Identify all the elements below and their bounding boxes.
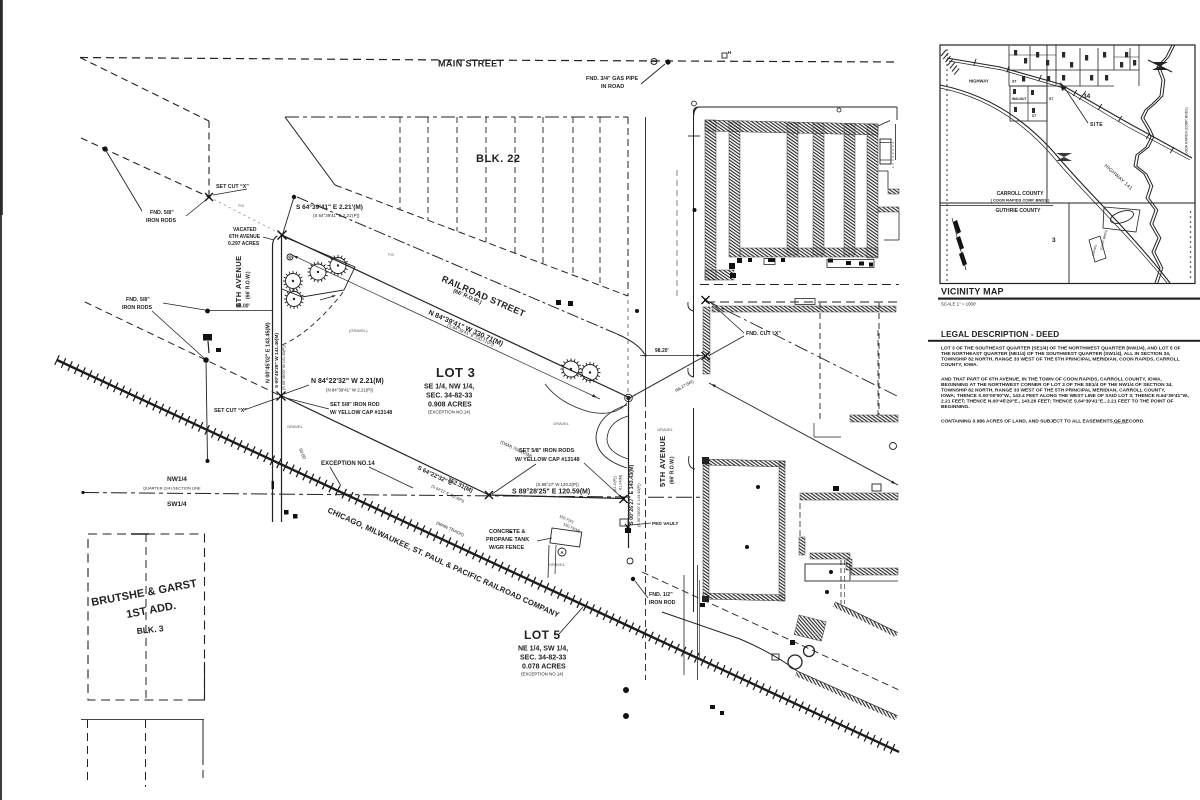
svg-text:PROPANE TANK: PROPANE TANK [486, 537, 529, 543]
svg-text:6TH AVENUE: 6TH AVENUE [229, 234, 261, 240]
svg-text:SET CUT “X”: SET CUT “X” [214, 408, 247, 414]
svg-text:QUARTER (1/4) SECTION LINE: QUARTER (1/4) SECTION LINE [143, 486, 201, 491]
svg-text:SEC. 34-82-33: SEC. 34-82-33 [426, 393, 472, 400]
svg-text:FND. CUT “X”: FND. CUT “X” [746, 331, 781, 337]
svg-text:(S 00°45'00" W 141.40(P)): (S 00°45'00" W 141.40(P)) [282, 345, 286, 390]
svg-text:(N 84°39'41" W 2.21(P)): (N 84°39'41" W 2.21(P)) [326, 388, 374, 393]
svg-text:IN ROAD: IN ROAD [601, 84, 624, 90]
svg-text:NE 1/4, SW 1/4,: NE 1/4, SW 1/4, [518, 646, 568, 653]
svg-text:AND THAT PART OF 6TH AVENUE, I: AND THAT PART OF 6TH AVENUE, IN THE TOWN… [941, 377, 1162, 383]
svg-text:(S 00°26'00" E 143.40(P)): (S 00°26'00" E 143.40(P)) [637, 483, 641, 527]
svg-text:NW1/4: NW1/4 [167, 476, 187, 483]
svg-text:0.908 ACRES: 0.908 ACRES [428, 402, 472, 409]
svg-text:CONTAINING 0.986 ACRES OF LAND: CONTAINING 0.986 ACRES OF LAND, AND SUBJ… [941, 419, 1145, 425]
svg-text:ST: ST [1012, 80, 1017, 84]
svg-text:SE 1/4, NW 1/4,: SE 1/4, NW 1/4, [424, 384, 474, 391]
svg-text:S 89°28'25" E 120.59(M): S 89°28'25" E 120.59(M) [512, 488, 590, 496]
svg-text:IRON ROD: IRON ROD [649, 600, 676, 606]
svg-text:TOWNSHIP 82 NORTH, RANGE 33 WE: TOWNSHIP 82 NORTH, RANGE 33 WEST OF THE … [941, 357, 1180, 363]
svg-text:0.078 ACRES: 0.078 ACRES [522, 664, 566, 671]
svg-text:(S.89°27' W 120.2(P)): (S.89°27' W 120.2(P)) [536, 482, 579, 487]
svg-text:MAIN STREET: MAIN STREET [438, 59, 504, 69]
svg-text:FND. 1/2": FND. 1/2" [649, 592, 673, 598]
svg-text:GRAVEL: GRAVEL [553, 421, 570, 426]
svg-text:( COON RAPIDS CORP. BNDS ): ( COON RAPIDS CORP. BNDS ) [991, 198, 1050, 203]
svg-text:GRAVEL: GRAVEL [549, 562, 566, 567]
svg-text:34: 34 [1083, 93, 1091, 100]
svg-text:SITE: SITE [1090, 122, 1103, 128]
svg-text:P08: P08 [238, 204, 244, 208]
svg-text:W/GR FENCE: W/GR FENCE [489, 545, 524, 551]
svg-text:FND. 3/4" GAS PIPE: FND. 3/4" GAS PIPE [586, 76, 638, 82]
svg-text:6TH AVENUE: 6TH AVENUE [234, 255, 243, 307]
svg-text:N 00°45'02" E 143.45(M): N 00°45'02" E 143.45(M) [266, 322, 272, 383]
svg-text:(EXCEPTION NO.14): (EXCEPTION NO.14) [521, 672, 564, 677]
svg-text:W/ YELLOW CAP #13148: W/ YELLOW CAP #13148 [330, 410, 392, 416]
svg-text:S 00°45'29" W 141.46(M): S 00°45'29" W 141.46(M) [274, 333, 280, 388]
svg-text:COON RAPIDS (CORP. BNDS): COON RAPIDS (CORP. BNDS) [1185, 107, 1189, 155]
svg-text:CONCRETE &: CONCRETE & [489, 529, 525, 535]
svg-text:(66' R.O.W.): (66' R.O.W.) [246, 271, 252, 299]
svg-text:GRAVEL: GRAVEL [657, 427, 674, 432]
svg-text:ST: ST [1032, 114, 1036, 118]
svg-text:COUNTY, IOWA.: COUNTY, IOWA. [941, 362, 979, 368]
svg-text:S 64°39'41" E 2.21'(M): S 64°39'41" E 2.21'(M) [296, 203, 363, 211]
svg-text:BLK. 22: BLK. 22 [476, 153, 520, 165]
svg-text:PED VAULT: PED VAULT [652, 521, 679, 527]
svg-text:(S 64°39'41" E 2.21'(P)): (S 64°39'41" E 2.21'(P)) [313, 213, 360, 218]
svg-text:IOWA; THENCE S.00°00'00"W., 14: IOWA; THENCE S.00°00'00"W., 143.4 FEET A… [941, 393, 1190, 399]
svg-text:2.21 FEET; THENCE N.00°45'29"E: 2.21 FEET; THENCE N.00°45'29"E., 143.26 … [941, 399, 1174, 405]
svg-text:P05: P05 [388, 253, 394, 257]
svg-text:VICINITY MAP: VICINITY MAP [941, 287, 1004, 297]
svg-text:SEC. 34-82-33: SEC. 34-82-33 [520, 655, 566, 662]
svg-text:W/ YELLOW CAP #13148: W/ YELLOW CAP #13148 [515, 457, 580, 463]
svg-text:0.297 ACRES: 0.297 ACRES [228, 241, 260, 247]
svg-text:61.24(M): 61.24(M) [619, 474, 623, 490]
svg-text:N 84°22'32" W 2.21(M): N 84°22'32" W 2.21(M) [311, 377, 384, 385]
svg-text:H: H [728, 50, 731, 55]
svg-text:LOT 3 OF THE SOUTHEAST QUARTER: LOT 3 OF THE SOUTHEAST QUARTER (SE1/4) O… [941, 346, 1181, 352]
svg-text:GRAVEL: GRAVEL [287, 424, 304, 429]
svg-text:(61.4'(P)): (61.4'(P)) [613, 476, 617, 492]
svg-text:FND. 5/8": FND. 5/8" [126, 297, 150, 303]
svg-text:LOT 3: LOT 3 [436, 365, 475, 380]
svg-text:VACATED: VACATED [233, 227, 257, 233]
svg-text:HIGHWAY: HIGHWAY [969, 79, 989, 84]
svg-text:GUTHRIE COUNTY: GUTHRIE COUNTY [996, 208, 1042, 214]
svg-text:(GRAVEL): (GRAVEL) [349, 328, 368, 333]
svg-text:5TH AVENUE: 5TH AVENUE [658, 435, 667, 487]
svg-text:LOT 5: LOT 5 [524, 628, 561, 642]
svg-text:85.00': 85.00' [236, 304, 250, 310]
svg-text:WALNUT: WALNUT [1012, 97, 1027, 101]
svg-text:CARROLL COUNTY: CARROLL COUNTY [997, 191, 1045, 197]
svg-text:BEGINNING.: BEGINNING. [941, 404, 970, 410]
svg-text:S 00°26'27" E 143.43(M): S 00°26'27" E 143.43(M) [629, 465, 635, 525]
svg-text:IRON RODS: IRON RODS [122, 305, 152, 311]
svg-text:(66' R.O.W.): (66' R.O.W.) [670, 456, 676, 484]
svg-text:FND. 5/8": FND. 5/8" [150, 210, 174, 216]
svg-text:EXCEPTION NO.14: EXCEPTION NO.14 [321, 461, 375, 467]
svg-text:(EXCEPTION NO.14): (EXCEPTION NO.14) [428, 410, 471, 415]
svg-text:SET 5/8" IRON ROD: SET 5/8" IRON ROD [330, 402, 380, 408]
svg-text:THE NORTHEAST QUARTER (NE1/4): THE NORTHEAST QUARTER (NE1/4) OF THE SOU… [941, 351, 1171, 357]
svg-text:3: 3 [1052, 237, 1056, 244]
svg-text:TOWNSHIP 82 NORTH, RANGE 33 WE: TOWNSHIP 82 NORTH, RANGE 33 WEST OF THE … [941, 388, 1166, 394]
svg-text:SW1/4: SW1/4 [167, 501, 187, 508]
svg-text:SET 5/8" IRON RODS: SET 5/8" IRON RODS [519, 448, 575, 454]
svg-text:SCALE 1" = 1000': SCALE 1" = 1000' [941, 302, 976, 307]
svg-text:LEGAL DESCRIPTION - DEED: LEGAL DESCRIPTION - DEED [941, 330, 1059, 339]
svg-text:98.20': 98.20' [655, 348, 669, 354]
svg-text:IRON RODS: IRON RODS [146, 218, 176, 224]
svg-text:BEGINNING AT THE NORTHWEST COR: BEGINNING AT THE NORTHWEST CORNER OF LOT… [941, 382, 1173, 388]
